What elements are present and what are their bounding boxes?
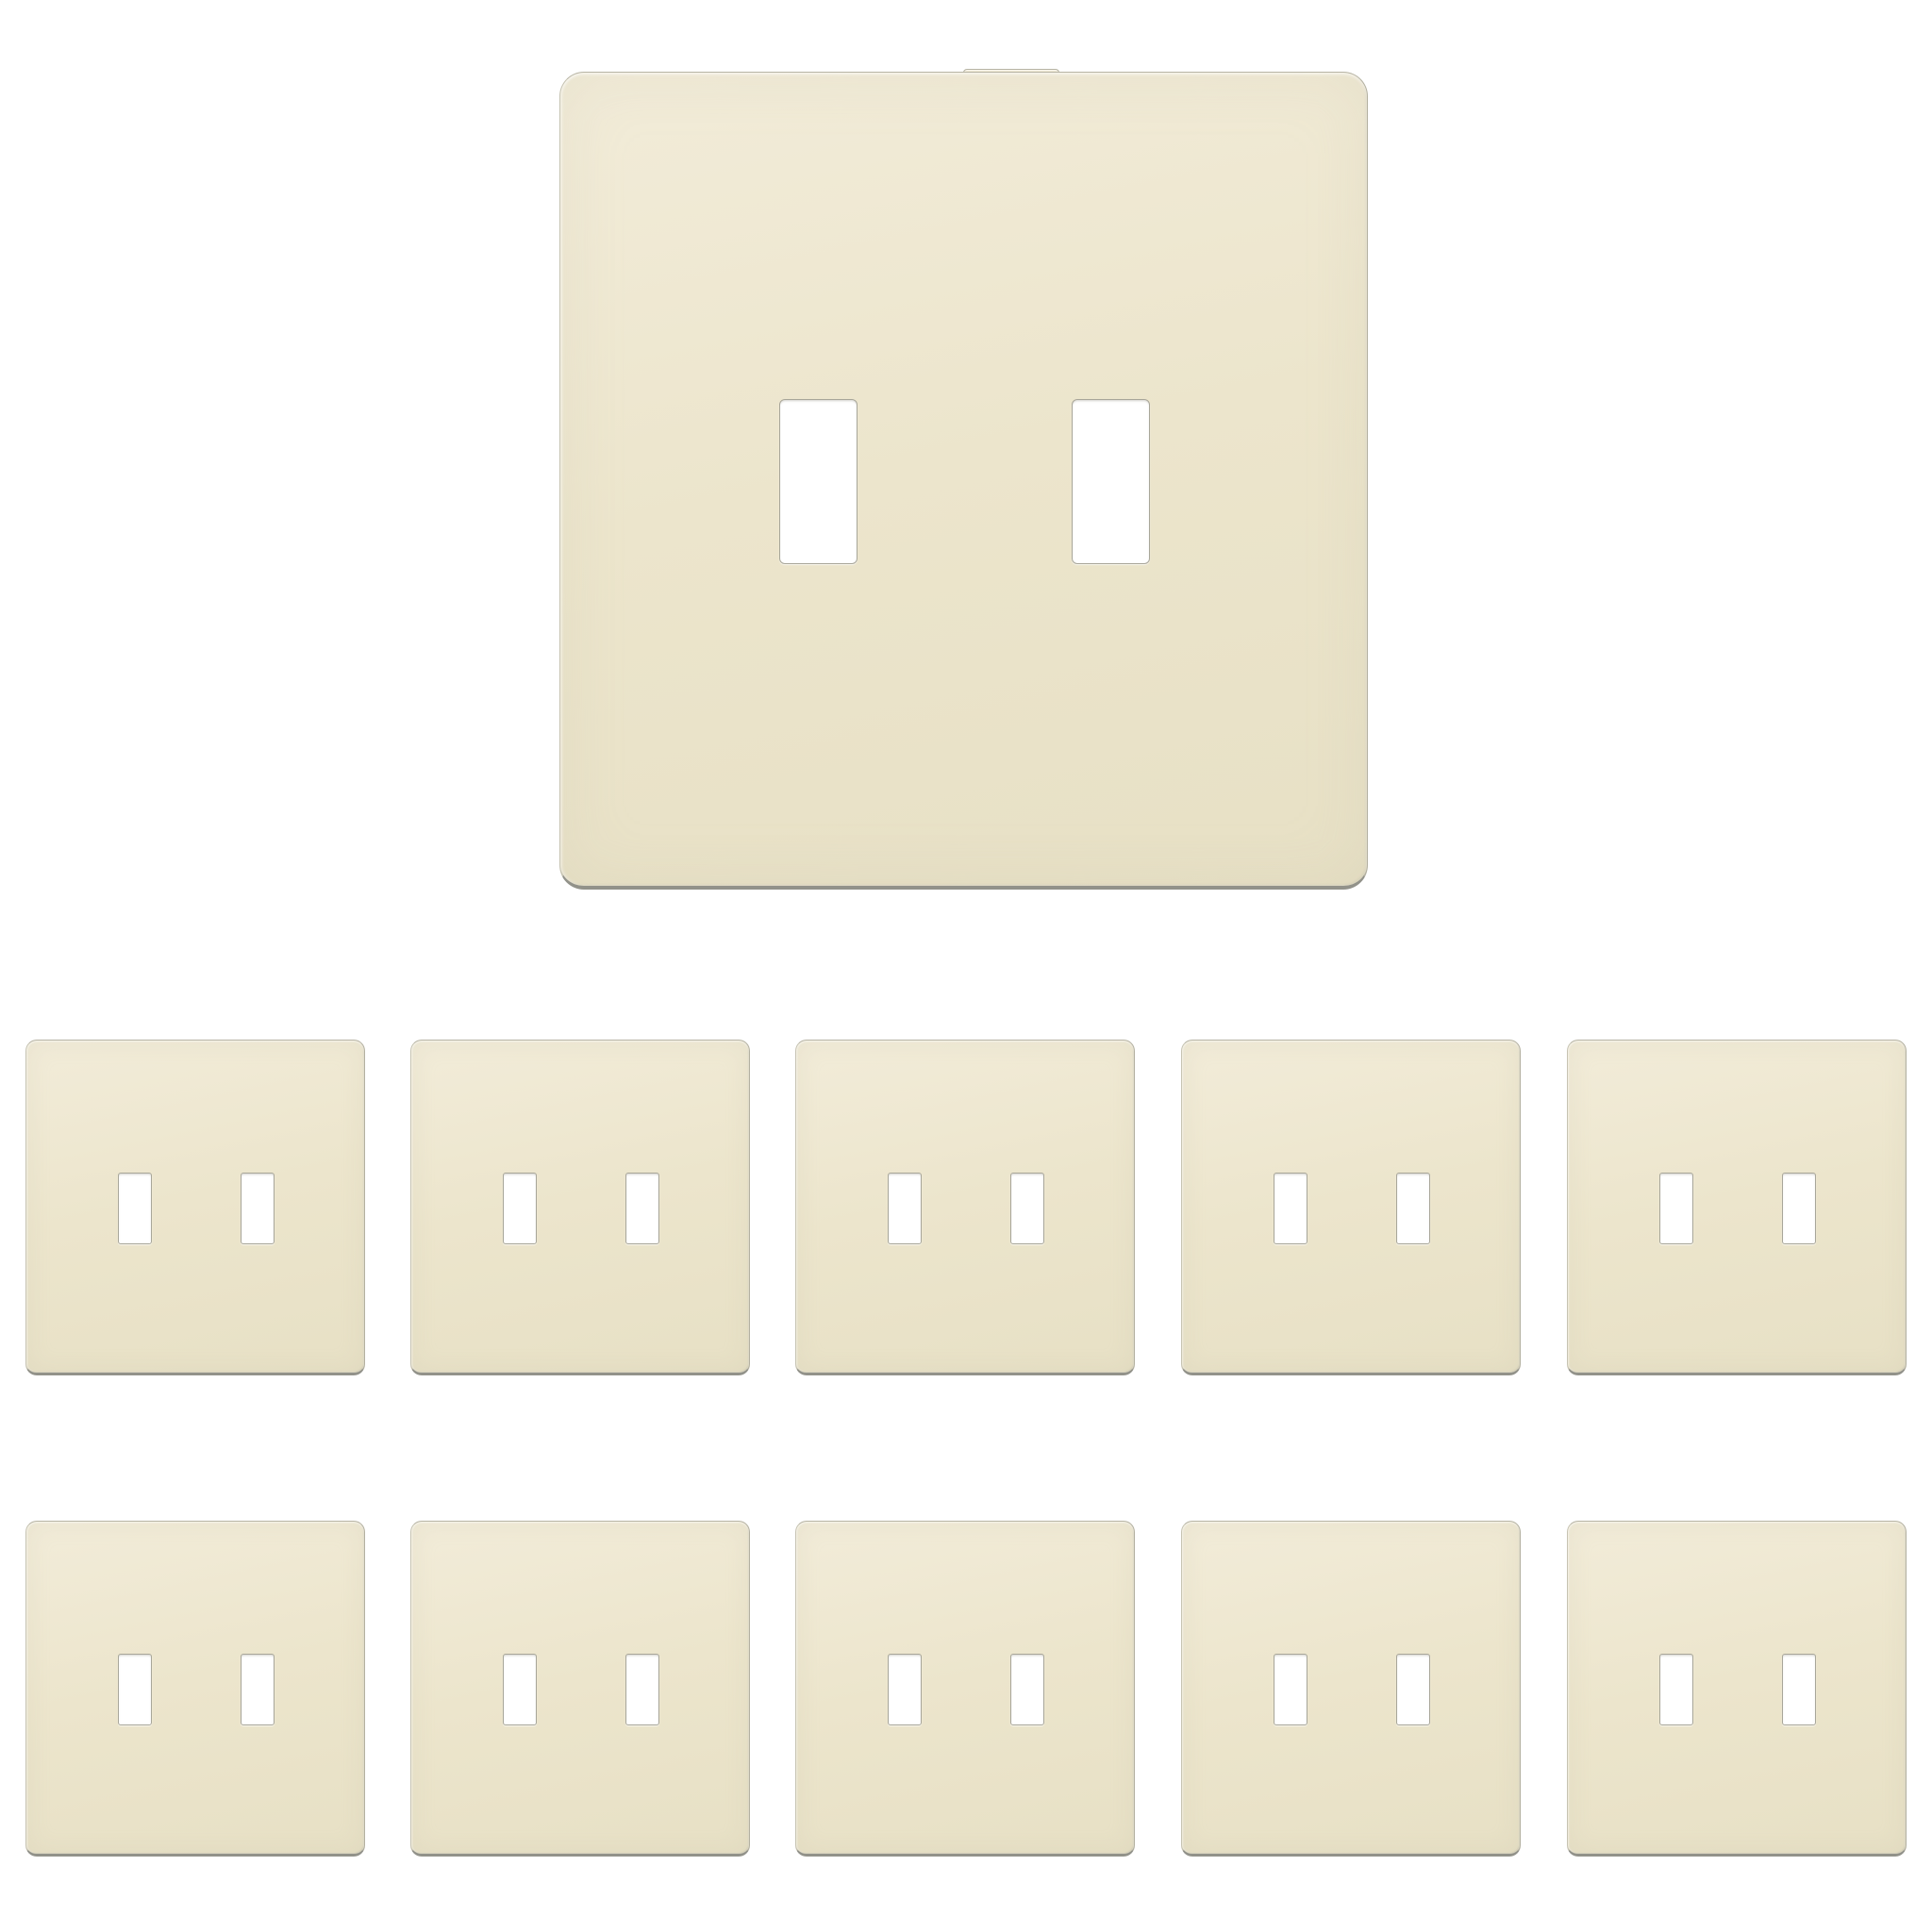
toggle-cutout-left xyxy=(1659,1173,1693,1244)
wall-plate xyxy=(1567,1521,1907,1857)
plate-face xyxy=(1567,1521,1907,1857)
toggle-cutout-left xyxy=(1274,1173,1307,1244)
toggle-cutout-left xyxy=(1274,1654,1307,1725)
wall-plate xyxy=(25,1040,365,1375)
toggle-cutout-left xyxy=(503,1654,537,1725)
toggle-cutout-left xyxy=(118,1654,152,1725)
toggle-cutout-right xyxy=(1010,1173,1044,1244)
wall-plate xyxy=(410,1521,750,1857)
toggle-cutout-left xyxy=(888,1173,922,1244)
plate-face xyxy=(410,1521,750,1857)
wall-plate xyxy=(1181,1040,1521,1375)
toggle-cutout-left xyxy=(888,1654,922,1725)
toggle-cutout-right xyxy=(1782,1173,1816,1244)
wall-plate-hero xyxy=(559,72,1368,890)
wall-plate xyxy=(410,1040,750,1375)
wall-plate xyxy=(25,1521,365,1857)
toggle-cutout-right xyxy=(1072,399,1150,564)
product-image xyxy=(0,0,1932,1932)
toggle-cutout-right xyxy=(625,1173,659,1244)
wall-plate xyxy=(795,1040,1135,1375)
toggle-cutout-right xyxy=(625,1654,659,1725)
toggle-cutout-left xyxy=(118,1173,152,1244)
toggle-cutout-right xyxy=(1396,1654,1430,1725)
plate-face xyxy=(25,1521,365,1857)
toggle-cutout-left xyxy=(1659,1654,1693,1725)
toggle-cutout-right xyxy=(241,1173,275,1244)
plate-face xyxy=(410,1040,750,1375)
plate-face xyxy=(795,1521,1135,1857)
wall-plate xyxy=(1181,1521,1521,1857)
toggle-cutout-right xyxy=(241,1654,275,1725)
toggle-cutout-right xyxy=(1782,1654,1816,1725)
wall-plate xyxy=(795,1521,1135,1857)
wall-plate xyxy=(1567,1040,1907,1375)
plate-face xyxy=(795,1040,1135,1375)
plate-face xyxy=(1567,1040,1907,1375)
toggle-cutout-left xyxy=(779,399,858,564)
plate-face xyxy=(1181,1040,1521,1375)
toggle-cutout-left xyxy=(503,1173,537,1244)
plate-face xyxy=(25,1040,365,1375)
plate-face xyxy=(1181,1521,1521,1857)
toggle-cutout-right xyxy=(1396,1173,1430,1244)
plate-face xyxy=(559,72,1368,890)
toggle-cutout-right xyxy=(1010,1654,1044,1725)
